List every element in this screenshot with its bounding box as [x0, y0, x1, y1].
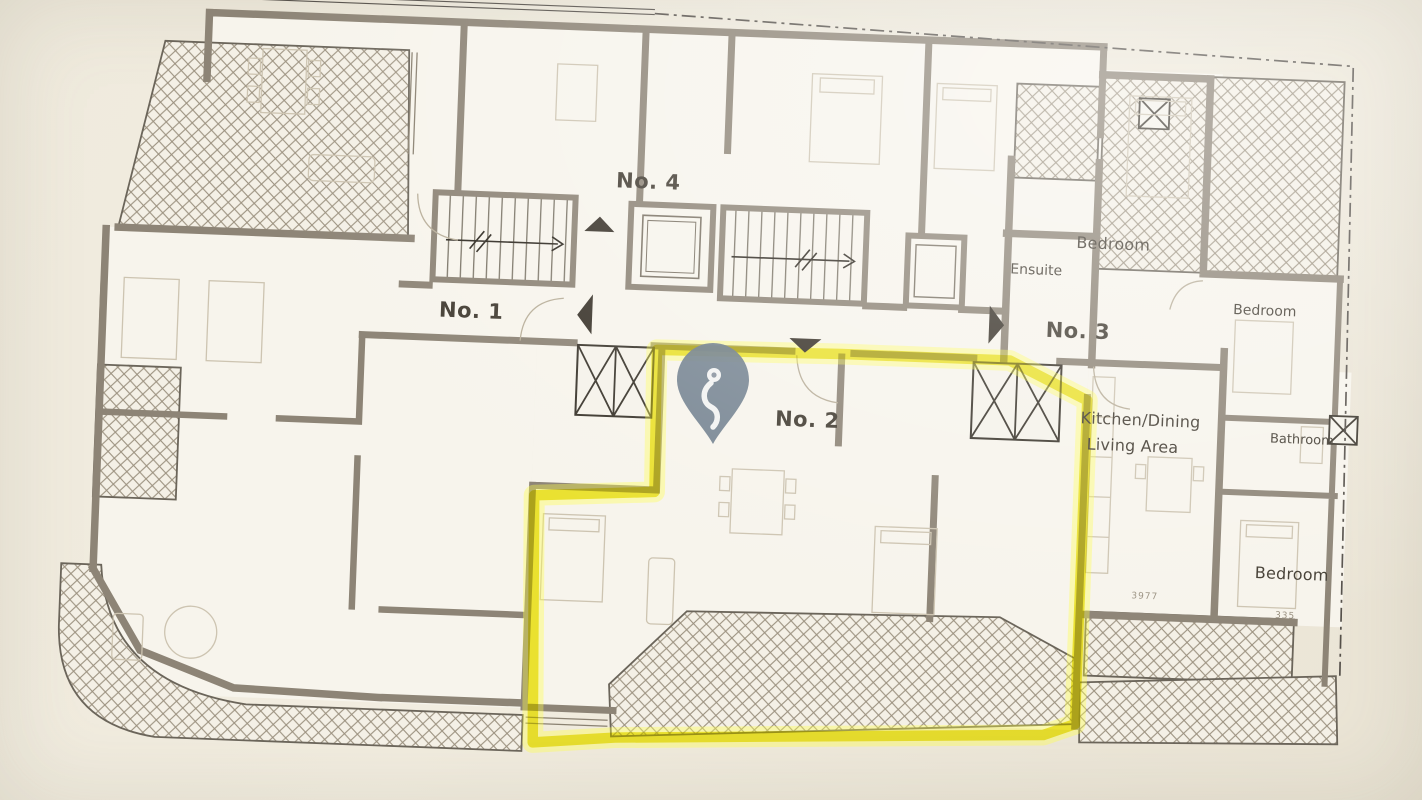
room-label-bathroom: Bathroom	[1270, 431, 1334, 448]
unit-label-no-3: No. 3	[1045, 318, 1110, 344]
room-label-bedroom-bottom: Bedroom	[1255, 563, 1329, 585]
unit-label-no-2: No. 2	[775, 406, 840, 432]
terrace-hatch-top-right-strip	[1014, 84, 1101, 181]
elevator-right	[906, 235, 965, 307]
pin-glyph-dot	[711, 372, 716, 377]
unit-label-no-4: No. 4	[616, 168, 681, 194]
shaft-x-left	[575, 345, 654, 418]
room-label-living-area: Living Area	[1086, 434, 1178, 457]
room-label-ensuite: Ensuite	[1010, 261, 1062, 279]
dimension-label-1: 3977	[1131, 591, 1158, 602]
stairwell-left	[432, 192, 575, 284]
dimension-label-2: 335	[1275, 611, 1296, 622]
room-label-bedroom-right: Bedroom	[1233, 302, 1297, 320]
terrace-hatch-bottom-right-2	[1077, 666, 1340, 752]
room-label-bedroom-top: Bedroom	[1076, 233, 1150, 255]
scanned-floor-plan: No. 4 No. 1 No. 2 No. 3 Bedroom Ensuite …	[0, 0, 1422, 800]
lightwell-hatch-left	[93, 364, 181, 499]
elevator-center	[628, 204, 713, 290]
unit-label-no-1: No. 1	[439, 298, 504, 324]
stairwell-center	[720, 207, 867, 303]
terrace-hatch-top-left	[118, 39, 415, 238]
floor-plan-canvas: No. 4 No. 1 No. 2 No. 3 Bedroom Ensuite …	[0, 0, 1422, 800]
